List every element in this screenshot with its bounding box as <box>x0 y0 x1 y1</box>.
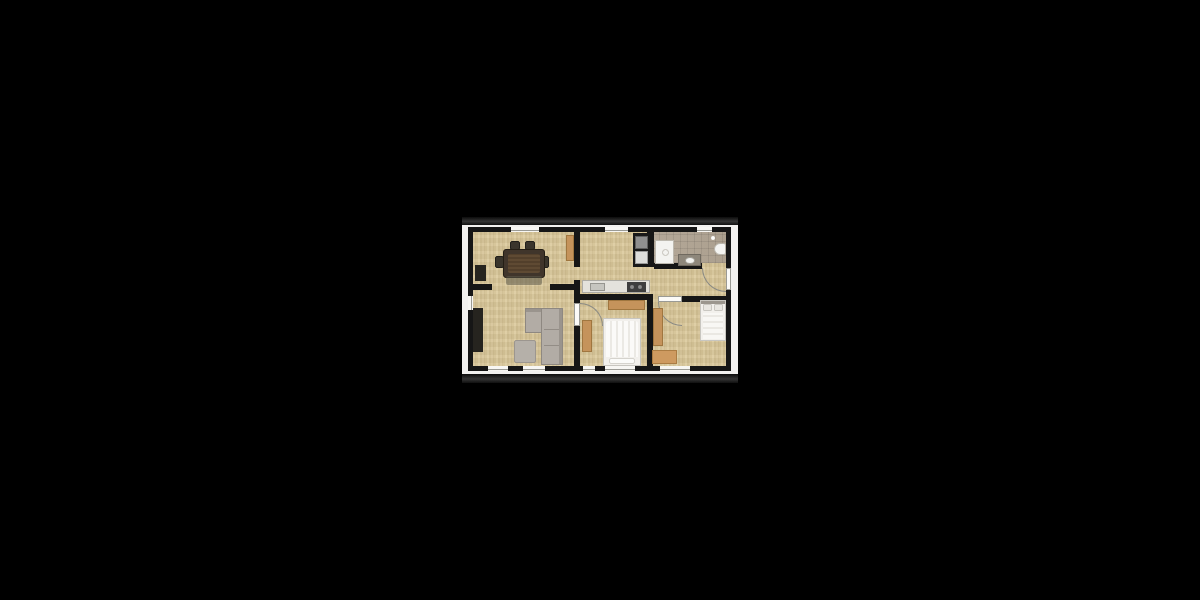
bed-duvet <box>703 313 723 339</box>
letterbox-bar-bottom <box>462 374 738 383</box>
wall-living-bedroom <box>574 326 580 366</box>
dresser-bedroom-right <box>652 350 677 364</box>
tall-cabinet <box>566 235 574 261</box>
vanity-sink-icon <box>685 257 695 264</box>
window-bedroom-middle-small <box>583 366 595 371</box>
bathroom-vanity <box>678 254 701 266</box>
bed-pillow <box>609 358 635 364</box>
wall-dining-living <box>550 284 580 290</box>
shower <box>655 240 674 264</box>
window-bedroom-middle <box>605 366 635 371</box>
bed-right <box>700 300 726 341</box>
letterbox-bar-top <box>462 217 738 225</box>
bed-duvet <box>606 321 638 357</box>
dining-table-top <box>508 254 540 273</box>
dining-table <box>503 249 545 278</box>
entry-door-leaf <box>726 268 731 290</box>
wall-dining-kitchen <box>574 232 580 267</box>
corner-sofa-side <box>541 308 563 365</box>
shower-drain-icon <box>662 249 669 256</box>
burner-icon <box>630 285 634 289</box>
window-bathroom <box>697 227 712 232</box>
wardrobe-bedroom-middle <box>582 320 592 352</box>
sideboard <box>475 265 486 281</box>
bed-pillow <box>703 304 712 311</box>
sofa-cushion-line <box>544 329 559 330</box>
window-living-2 <box>523 366 545 371</box>
toilet <box>714 243 726 255</box>
kitchen-counter <box>582 280 650 293</box>
bed-pillow <box>714 304 723 311</box>
appliance-column <box>633 233 650 267</box>
fridge-icon <box>635 251 648 264</box>
dresser-bedroom-middle <box>608 300 645 310</box>
outer-wall-right <box>726 227 731 371</box>
window-kitchen <box>605 227 628 232</box>
bathroom-light-icon <box>711 236 715 240</box>
dining-bench-shadow <box>506 276 542 285</box>
kitchen-sink <box>590 283 605 291</box>
window-dining <box>511 227 539 232</box>
cooktop <box>627 282 646 292</box>
sofa-cushion-line <box>544 345 559 346</box>
tv-board <box>473 308 483 352</box>
screen-background <box>0 0 1200 600</box>
double-bed <box>603 318 641 366</box>
oven-icon <box>635 236 648 249</box>
window-living-1 <box>488 366 508 371</box>
wardrobe-bedroom-right <box>653 308 663 346</box>
outer-wall-top <box>468 227 731 232</box>
window-bedroom-right <box>660 366 690 371</box>
wall-dining-living-stub <box>473 284 492 290</box>
floor-plan-image <box>462 217 738 383</box>
living-rug <box>514 340 536 363</box>
burner-icon <box>638 285 642 289</box>
